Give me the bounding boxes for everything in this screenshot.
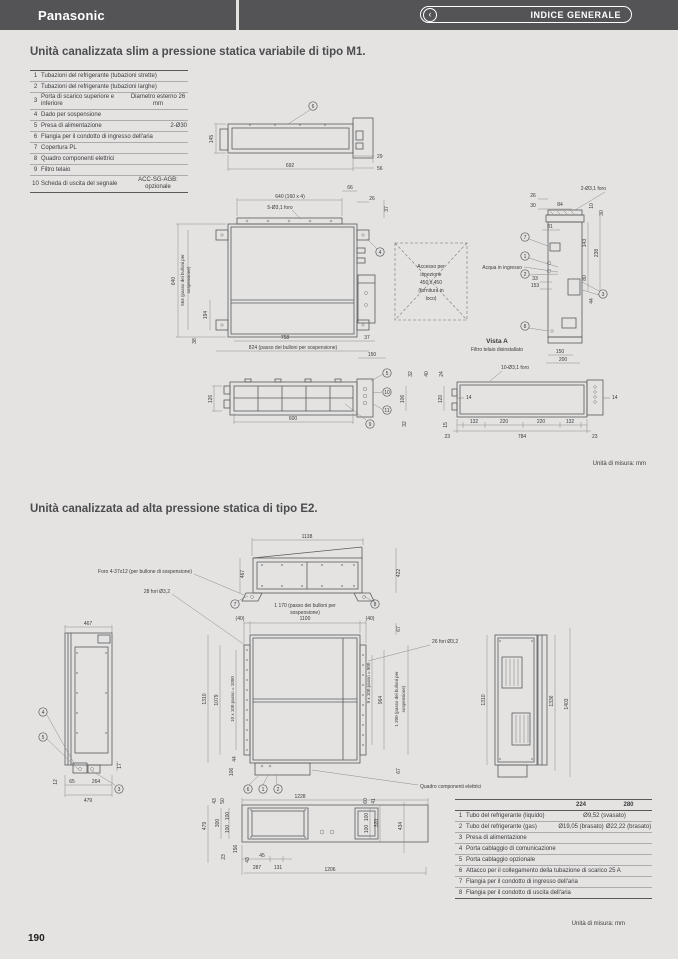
balloon-number: 3: [118, 787, 121, 793]
dim-label: 26: [530, 193, 536, 199]
dim-label: 10: [589, 203, 595, 209]
dim-label: 44: [589, 298, 595, 304]
dim-label: 106: [400, 395, 406, 404]
dim-label: 238: [594, 249, 600, 258]
balloon-number: 7: [234, 602, 237, 608]
back-chevron-icon[interactable]: ‹: [423, 8, 437, 22]
dim-label: 156: [233, 845, 239, 854]
m1-vista-a-view: 2-Ø3,1 foro 26 30 84 10 30 81 Acqua in i…: [471, 186, 607, 363]
dim-label: 220: [500, 419, 509, 425]
dim-label: 434: [398, 822, 404, 831]
balloon-number: 8: [374, 602, 377, 608]
balloon: 4: [39, 708, 47, 716]
dim-label: 15: [443, 422, 449, 428]
unit-of-measure-note: Unità di misura: mm: [572, 921, 625, 927]
dim-label: 30: [530, 203, 536, 209]
table-row: 6Attacco per il collegamento della tubaz…: [455, 866, 652, 877]
dim-label: 640 (160 x 4): [275, 194, 305, 200]
inspection-access-note: Accesso per ispezione 450 x 450 (fornitu…: [395, 243, 467, 320]
dim-label: 824 (passo dei bulloni per sospensione): [249, 345, 338, 351]
dim-label: 24: [439, 371, 445, 377]
column-header: 224: [557, 802, 605, 809]
balloon-number: 5: [386, 371, 389, 377]
dim-label: 1100: [300, 616, 311, 622]
balloon-number: 9: [369, 422, 372, 428]
dim-label: 640: [171, 277, 177, 286]
m1-bottom-front-view: 126 600 5 10 11 9: [208, 369, 391, 428]
balloon: 5: [39, 733, 47, 741]
dim-label: 9 x 100 passo = 900: [366, 662, 371, 703]
dim-label: 287: [253, 865, 262, 871]
dim-label: 44: [232, 756, 238, 762]
dim-label: 23: [444, 434, 450, 440]
balloon: 9: [366, 420, 374, 428]
section-title-m1: Unità canalizzata slim a pressione stati…: [30, 46, 366, 58]
hole-callout: 5-Ø3,1 foro: [267, 205, 293, 211]
dim-label: 17: [117, 763, 123, 769]
table-row: 1Tubo del refrigerante (liquido)Ø9,52 (s…: [455, 811, 652, 822]
dim-label: 32: [408, 371, 414, 377]
indice-generale-button[interactable]: ‹ INDICE GENERALE: [420, 6, 632, 23]
dim-label: 131: [274, 865, 283, 871]
dim-label: 126: [208, 395, 214, 404]
dim-label: 1 170 (passo dei bulloni per: [274, 603, 336, 609]
dim-label: 100: [364, 813, 370, 822]
dim-label: 1310: [202, 693, 208, 704]
nav-button-label: INDICE GENERALE: [437, 10, 631, 20]
unit-of-measure-note: Unità di misura: mm: [593, 461, 646, 467]
hole-callout: 10-Ø3,1 foro: [501, 365, 529, 371]
dim-label: 422: [396, 569, 402, 578]
dim-label: 10 x 100 passo = 1000: [230, 676, 235, 722]
dim-label: 1228: [294, 794, 305, 800]
dim-label: 23: [592, 434, 598, 440]
balloon-number: 1: [262, 787, 265, 793]
dim-label: 145: [209, 135, 215, 144]
balloon: 8: [521, 322, 529, 330]
dim-label: 23: [221, 854, 227, 860]
balloon-number: 4: [379, 250, 382, 256]
dim-label: 60: [363, 798, 369, 804]
dim-label: 264: [92, 779, 101, 785]
balloon-number: 6: [312, 104, 315, 110]
dim-label: (40): [236, 616, 245, 622]
balloon-number: 3: [602, 292, 605, 298]
hole-callout: Foro 4-37x12 (per bullone di sospensione…: [98, 569, 192, 575]
balloon: 6: [244, 785, 252, 793]
dim-label: 80: [582, 275, 588, 281]
hole-callout: 26 fori Ø3,2: [432, 639, 458, 645]
note-line: 450 x 450: [420, 280, 442, 286]
table-row: 2Tubazioni del refrigerante (tubazioni l…: [30, 82, 188, 93]
balloon-number: 2: [277, 787, 280, 793]
dim-label: sospensione): [401, 685, 406, 712]
dim-label: 67: [396, 768, 402, 774]
dim-label: 150: [556, 349, 565, 355]
dim-label: 220: [537, 419, 546, 425]
dim-label: 29: [377, 154, 383, 160]
balloon: 6: [309, 102, 317, 110]
dim-label: 12: [53, 779, 59, 785]
dim-label: 1403: [564, 698, 570, 709]
dim-label: 1336: [549, 695, 555, 706]
e2-bottom-front-view: 1228 43 50 300 100 100 479 156 23 43 45 …: [202, 794, 428, 875]
dim-label: 14: [612, 395, 618, 401]
page-number: 190: [28, 933, 45, 944]
dim-label: 132: [470, 419, 479, 425]
e2-parts-table: 224 280 1Tubo del refrigerante (liquido)…: [455, 799, 652, 899]
dim-label: 600: [289, 416, 298, 422]
dim-label: 479: [84, 798, 93, 804]
dim-label: 153: [531, 283, 540, 289]
component-callout: Quadro componenti elettrici: [420, 784, 481, 790]
dim-label: 300: [215, 819, 221, 828]
balloon: 1: [259, 785, 267, 793]
table-row: 4Porta cablaggio di comunicazione: [455, 844, 652, 855]
dim-label: 26: [369, 196, 375, 202]
balloon: 3: [115, 785, 123, 793]
balloon-number: 4: [42, 710, 45, 716]
balloon-number: 6: [247, 787, 250, 793]
balloon: 4: [376, 248, 384, 256]
dim-label: 1138: [302, 534, 313, 540]
note-line: loco): [426, 296, 437, 302]
balloon-number: 7: [524, 235, 527, 241]
dim-label: 143: [582, 239, 588, 248]
balloon: 1: [521, 252, 529, 260]
note-line: (fornitura in: [418, 288, 444, 294]
dim-label: 132: [566, 419, 575, 425]
dim-label: 1310: [481, 694, 487, 705]
table-row: 2Tubo del refrigerante (gas)Ø19,05 (bras…: [455, 822, 652, 833]
dim-label: 194: [203, 311, 209, 320]
balloon-number: 8: [524, 324, 527, 330]
dim-label: 43: [212, 798, 218, 804]
dim-label: 43: [245, 857, 251, 863]
dim-label: 320: [374, 819, 380, 828]
dim-label: 1 200 (passo dei bulloni per: [394, 671, 399, 727]
balloon: 7: [521, 233, 529, 241]
balloon-number: 1: [524, 254, 527, 260]
m1-technical-drawings: 6 145 692 29 56: [160, 93, 660, 465]
dim-label: 100: [364, 825, 370, 834]
balloon: 3: [599, 290, 607, 298]
dim-label: 38: [192, 338, 198, 344]
dim-label: 467: [240, 570, 246, 579]
dim-label: 32: [402, 421, 408, 427]
dim-label: 100: [225, 812, 231, 821]
dim-label: 41: [371, 798, 377, 804]
dim-label: 84: [557, 202, 563, 208]
catalog-page: Panasonic ‹ INDICE GENERALE Unità canali…: [0, 0, 678, 959]
dim-label: 14: [466, 395, 472, 401]
dim-label: 33: [532, 276, 538, 282]
header-divider: [236, 0, 239, 30]
dim-label: 150: [368, 352, 377, 358]
dim-label: 564 (passo dei bulloni per: [180, 254, 185, 306]
hole-callout: 28 fori Ø3,2: [144, 589, 170, 595]
m1-bottom-side-view: 10-Ø3,1 foro 32 40 24 106 120 14 14 32 1…: [400, 365, 618, 440]
balloon-number: 5: [42, 735, 45, 741]
dim-label: 692: [286, 163, 295, 169]
dim-label: sospensione): [186, 266, 191, 293]
dim-label: 784: [518, 434, 527, 440]
callout: Acqua in ingresso: [482, 265, 522, 271]
dim-label: 120: [438, 395, 444, 404]
dim-label: 37: [364, 335, 370, 341]
dim-label: 45: [259, 853, 265, 859]
balloon-number: 11: [384, 408, 389, 414]
dim-label: 66: [347, 185, 353, 191]
balloon: 7: [231, 600, 239, 608]
dim-label: 106: [229, 768, 235, 777]
column-header: 280: [605, 802, 652, 809]
table-row: 3Presa di alimentazione: [455, 833, 652, 844]
view-caption: Vista A: [486, 338, 508, 345]
balloon: 2: [521, 270, 529, 278]
dim-label: 1079: [214, 694, 220, 705]
table-row: 7Flangia per il condotto di ingresso del…: [455, 877, 652, 888]
dim-label: 467: [84, 621, 93, 627]
dim-label: 100: [225, 825, 231, 834]
view-subcaption: Filtro telaio disinstallato: [471, 347, 523, 353]
dim-label: 200: [559, 357, 568, 363]
e2-left-side-view: 467 17 12 65 264 479 4 5 3: [39, 621, 123, 804]
dim-label: 1206: [324, 867, 335, 873]
dim-label: 30: [599, 210, 605, 216]
balloon: 5: [383, 369, 391, 377]
table-row: 1Tubazioni del refrigerante (tubazioni s…: [30, 71, 188, 82]
dim-label: 37: [384, 206, 390, 212]
note-line: ispezione: [420, 272, 441, 278]
balloon: 11: [383, 406, 391, 414]
note-line: Accesso per: [417, 264, 445, 270]
m1-front-view: 6 145 692 29 56: [209, 102, 383, 172]
m1-plan-view: 640 (160 x 4) 5-Ø3,1 foro 66 26 37 640 5…: [171, 185, 390, 358]
balloon: 10: [383, 388, 391, 396]
panasonic-logo: Panasonic: [38, 8, 105, 23]
table-row: 5Porta cablaggio opzionale: [455, 855, 652, 866]
balloon-number: 10: [384, 390, 390, 396]
dim-label: 50: [220, 798, 226, 804]
dim-label: 67: [396, 626, 402, 632]
dim-label: 65: [69, 779, 75, 785]
hole-callout: 2-Ø3,1 foro: [581, 186, 607, 192]
dim-label: 758: [281, 335, 290, 341]
dim-label: 479: [202, 822, 208, 831]
balloon: 8: [371, 600, 379, 608]
table-header-row: 224 280: [455, 800, 652, 811]
dim-label: 40: [424, 371, 430, 377]
dim-label: 56: [377, 166, 383, 172]
dim-label: (40): [366, 616, 375, 622]
e2-right-side-view: 1310 1336 1403: [481, 628, 570, 777]
dim-label: 964: [378, 696, 384, 705]
table-row: 8Flangia per il condotto di uscita dell'…: [455, 888, 652, 898]
balloon: 2: [274, 785, 282, 793]
page-header: Panasonic ‹ INDICE GENERALE: [0, 0, 678, 30]
e2-plan-view: (40) 1100 (40) 67 1310 1079 10 x 100 pas…: [202, 616, 481, 793]
section-title-e2: Unità canalizzata ad alta pressione stat…: [30, 503, 318, 515]
balloon-number: 2: [524, 272, 527, 278]
dim-label: 81: [547, 224, 553, 230]
